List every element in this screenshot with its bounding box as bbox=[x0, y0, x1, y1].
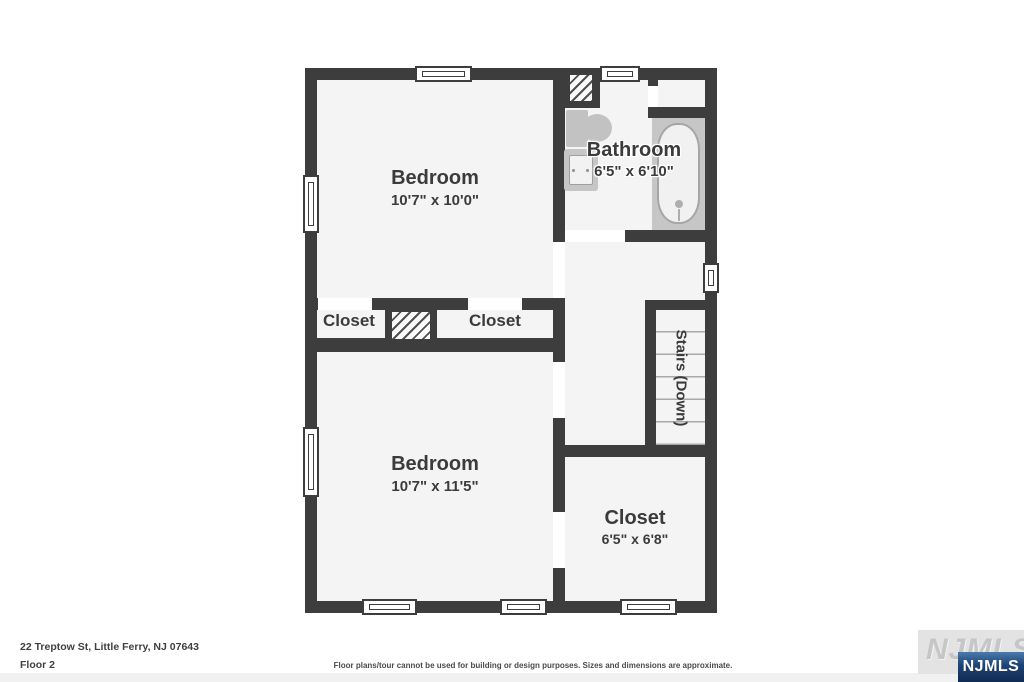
room-name: Closet bbox=[565, 507, 705, 529]
wall-outer-top bbox=[305, 68, 717, 80]
door-opening-closet-bottom-right bbox=[553, 512, 565, 568]
window-icon bbox=[362, 599, 417, 615]
door-opening-bedroom-bottom bbox=[553, 362, 565, 418]
room-dims: 10'7" x 10'0" bbox=[317, 193, 553, 210]
window-icon bbox=[500, 599, 547, 615]
window-icon bbox=[415, 66, 472, 82]
room-label-bathroom: Bathroom 6'5" x 6'10" bbox=[549, 139, 719, 181]
chimney-hatch-icon bbox=[570, 75, 592, 101]
door-opening-alcove bbox=[648, 86, 658, 107]
toilet-bowl-icon bbox=[582, 114, 612, 142]
door-opening-closet-left bbox=[318, 298, 372, 310]
footer-strip bbox=[0, 673, 1024, 682]
room-name: Closet bbox=[311, 312, 387, 331]
room-dims: 6'5" x 6'8" bbox=[565, 532, 705, 547]
njmls-badge-text: NJMLS bbox=[963, 658, 1020, 676]
wall-alcove-bottom bbox=[648, 107, 705, 118]
room-dims: 6'5" x 6'10" bbox=[549, 164, 719, 181]
wall-stairs-left bbox=[645, 300, 656, 457]
chimney-hatch-icon bbox=[392, 312, 430, 339]
wall-hall-bottom bbox=[553, 445, 717, 457]
bathtub-drain-icon bbox=[675, 200, 683, 208]
property-address: 22 Treptow St, Little Ferry, NJ 07643 bbox=[20, 641, 199, 653]
room-label-closet-bottom-right: Closet 6'5" x 6'8" bbox=[565, 507, 705, 547]
wall-stairs-top bbox=[645, 300, 717, 310]
door-opening-bathroom bbox=[565, 230, 625, 242]
window-icon bbox=[620, 599, 677, 615]
bathtub-drain-line bbox=[678, 209, 680, 221]
room-label-bedroom-bottom: Bedroom 10'7" x 11'5" bbox=[317, 453, 553, 496]
door-opening-closet-mid bbox=[468, 298, 522, 310]
room-name: Closet bbox=[437, 312, 553, 331]
door-opening-bedroom-top bbox=[553, 242, 565, 298]
disclaimer-text: Floor plans/tour cannot be used for buil… bbox=[333, 661, 733, 670]
room-name: Bathroom bbox=[549, 139, 719, 161]
room-dims: 10'7" x 11'5" bbox=[317, 479, 553, 496]
window-icon bbox=[703, 263, 719, 293]
room-name: Bedroom bbox=[317, 167, 553, 189]
njmls-logo-badge: NJMLS bbox=[958, 652, 1024, 682]
room-name: Bedroom bbox=[317, 453, 553, 475]
room-label-closet-left: Closet bbox=[311, 312, 387, 331]
room-label-closet-mid: Closet bbox=[437, 312, 553, 331]
window-icon bbox=[600, 66, 640, 82]
floor-plan-page: Stairs (Down) Bedroom 10'7" x 10'0" Bath… bbox=[0, 0, 1024, 682]
floor-label: Floor 2 bbox=[20, 659, 55, 671]
room-label-bedroom-top: Bedroom 10'7" x 10'0" bbox=[317, 167, 553, 210]
